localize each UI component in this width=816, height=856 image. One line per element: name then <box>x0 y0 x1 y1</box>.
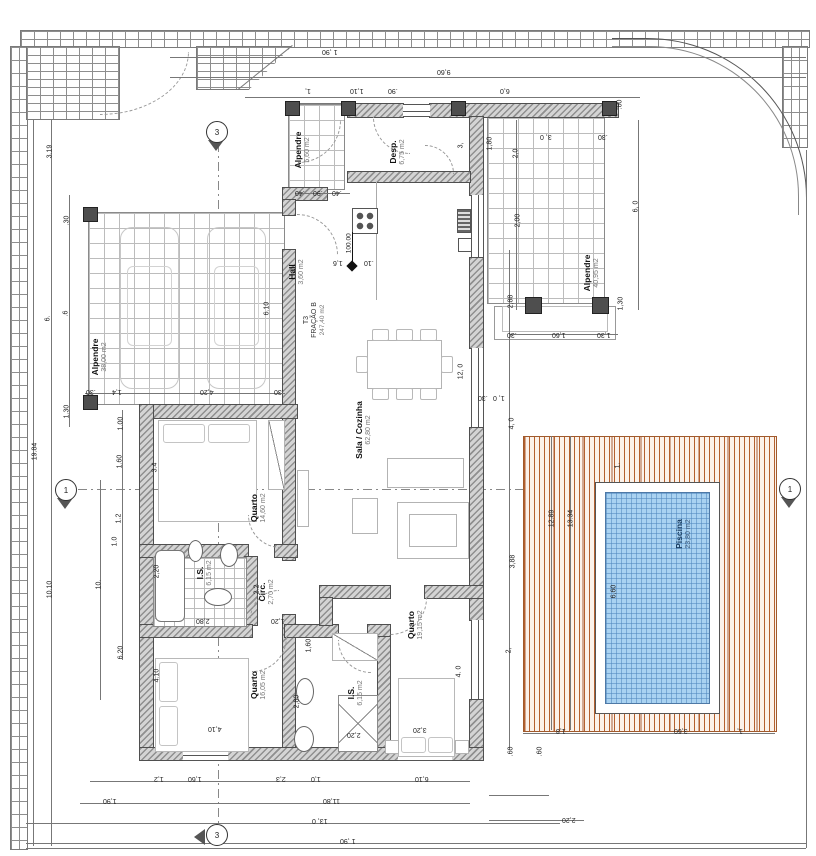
room-name: Hall <box>288 264 298 280</box>
gate-swing-arc <box>100 52 189 115</box>
room-area: 62,80 m2 <box>365 415 373 444</box>
dim-label: 1.0 <box>111 537 118 547</box>
dim-label: 6. <box>44 316 51 322</box>
room-name: I.S. <box>196 567 206 580</box>
dim-label: 3.19 <box>46 145 53 159</box>
kitchen-appliance <box>458 210 470 232</box>
room-area: 6,75 m2 <box>399 139 407 164</box>
dim-line <box>33 120 34 846</box>
dining-chair <box>396 329 413 341</box>
section-number: 3 <box>215 128 219 137</box>
nightstand <box>385 740 399 754</box>
section-number: 3 <box>215 831 219 840</box>
dim-label: 2,20 <box>153 565 160 579</box>
dim-label: 19.84 <box>31 443 38 461</box>
dim-label: 6,60 <box>610 585 617 599</box>
pillow <box>401 737 426 753</box>
room-label-bath2: I.S. 6,15 m2 <box>344 658 368 728</box>
stove-icon <box>352 208 378 234</box>
room-label-porch-small: Alpendre 5,60 m2 <box>291 115 315 185</box>
wall-bedroom3-top <box>425 586 483 598</box>
dim-label: 2,3 <box>276 775 286 782</box>
dim-label: 2,80 <box>293 695 300 709</box>
room-area: 38,00 m2 <box>101 342 109 371</box>
dim-line <box>509 250 510 750</box>
dim-label: 3,88 <box>509 555 516 569</box>
dim-line <box>245 97 640 98</box>
property-line-bottom <box>26 848 806 849</box>
dim-label: 6,10 <box>415 775 429 782</box>
dim-label: 13.34 <box>567 510 574 528</box>
dim-line <box>638 120 639 310</box>
wall-bedroom2-top <box>285 625 338 637</box>
room-area: 40,95 m2 <box>593 258 601 287</box>
dining-chair <box>420 329 437 341</box>
car-cabin <box>214 266 259 346</box>
wall-post <box>603 102 616 115</box>
room-label-garage: Alpendre 38,00 m2 <box>88 322 112 392</box>
dim-label: 2,00 <box>514 214 521 228</box>
garage-post <box>84 208 97 221</box>
dim-label: .40 <box>332 189 342 196</box>
room-name: Alpendre <box>91 339 101 376</box>
room-label-bedroom1: Quarto 14,60 m2 <box>247 473 271 543</box>
unit-fraction: FRAÇÃO B <box>311 302 319 338</box>
dim-label: 12.89 <box>548 510 555 528</box>
dim-line <box>51 120 52 846</box>
dim-label: .60 <box>616 100 623 110</box>
armchair <box>352 498 378 534</box>
dim-label: 6.10 <box>263 302 270 316</box>
pillow <box>159 662 178 702</box>
room-label-bath1: I.S. 6,15 m2 <box>193 538 217 608</box>
kitchen-counter-line <box>376 182 377 300</box>
dim-label: 1,10 <box>350 87 364 94</box>
dim-label: 3,60 <box>674 727 688 734</box>
room-label-pantry: Desp. 6,75 m2 <box>386 117 410 187</box>
car-cabin <box>127 266 172 346</box>
room-label-bedroom2: Quarto 16,05 m2 <box>247 650 271 720</box>
dim-label: 1,8 <box>556 727 566 734</box>
dim-label: .30 <box>598 133 608 140</box>
section-marker-left: 1 <box>55 479 77 501</box>
section-number: 1 <box>788 485 792 494</box>
dim-label: 4. 0 <box>455 666 462 678</box>
dim-label: 1,30 <box>597 331 611 338</box>
dim-label: 1.2 <box>115 514 122 524</box>
street-corner-curve-inner <box>612 46 799 215</box>
pillow <box>208 424 250 443</box>
room-name: Quarto <box>250 671 260 699</box>
dim-label: 6.20 <box>117 646 124 660</box>
nightstand <box>455 740 469 754</box>
dim-label: 1, 0 <box>493 394 505 401</box>
dim-line <box>80 803 470 804</box>
dim-label: 1,4 <box>112 388 122 395</box>
room-area: 6,15 m2 <box>357 680 365 705</box>
room-area: 16,05 m2 <box>260 670 268 699</box>
dining-chair <box>441 356 453 373</box>
dim-label: 9,60 <box>437 68 451 75</box>
tv-unit <box>297 470 309 527</box>
dim-label: 1,2 <box>154 775 164 782</box>
room-area: 14,60 m2 <box>260 493 268 522</box>
porch-post <box>526 298 541 313</box>
dim-label: 1, <box>305 87 311 94</box>
dim-line <box>551 436 552 730</box>
dim-label: 6, 0 <box>632 201 639 213</box>
dim-label: 11,80 <box>323 797 340 804</box>
dim-label: 3, <box>457 143 464 149</box>
room-name: Sala / Cozinha <box>355 401 365 459</box>
coffee-table <box>409 514 457 547</box>
dim-label: 1,0 <box>311 775 321 782</box>
dim-label: 1,6 <box>333 259 343 266</box>
dim-label: .30 <box>507 331 517 338</box>
room-area: 3,60 m2 <box>298 259 306 284</box>
wall-closet <box>320 598 332 625</box>
dim-label: 3.4 <box>151 463 158 473</box>
car-outline <box>120 227 179 389</box>
dim-label: 1.30 <box>63 405 70 419</box>
dim-label: 1,90 <box>103 797 117 804</box>
boundary-wall-left <box>10 46 28 850</box>
sink-icon <box>220 543 238 567</box>
dim-label: 1.00 <box>117 417 124 431</box>
wall-post <box>342 102 355 115</box>
dim-label: 4, 0 <box>508 418 515 430</box>
wall-bedroom1-top <box>140 405 297 418</box>
dim-label: 6,0 <box>500 87 510 94</box>
dim-line <box>489 795 549 796</box>
dim-line <box>122 410 123 660</box>
sofa <box>387 458 464 488</box>
dim-label: 2,20 <box>562 816 576 823</box>
dim-label: .40 <box>295 189 305 196</box>
dim-line <box>26 823 560 824</box>
window-right-bedroom3 <box>471 620 484 700</box>
section-marker-bottom: 3 <box>206 824 228 846</box>
wall-top <box>348 104 403 117</box>
unit-total-area: 247,40 m2 <box>319 305 326 336</box>
dim-label: .10 <box>364 259 374 266</box>
dim-label: 1, <box>737 727 743 734</box>
dim-label: 10. <box>95 580 102 590</box>
dining-chair <box>420 388 437 400</box>
dim-label: 1,30 <box>617 297 624 311</box>
room-label-living: Sala / Cozinha 62,80 m2 <box>352 395 376 465</box>
room-name: I.S. <box>347 687 357 700</box>
dim-label: 2, <box>505 648 512 654</box>
garage-post <box>84 396 97 409</box>
dim-label: 10.10 <box>46 581 53 599</box>
section-marker-top: 3 <box>206 121 228 143</box>
dining-table <box>367 340 442 389</box>
dim-line <box>170 57 806 58</box>
wall-bath2-right <box>378 637 390 748</box>
dim-label: 1. <box>614 463 621 469</box>
pillow <box>428 737 453 753</box>
dim-label: 1.60 <box>116 455 123 469</box>
dim-label: 3,20 <box>413 726 427 733</box>
room-area: 5,60 m2 <box>304 137 312 162</box>
dim-label: .30 <box>274 388 284 395</box>
window-right-living <box>471 348 484 428</box>
pillow <box>163 424 205 443</box>
window-top <box>403 104 430 117</box>
dim-label: 1 ,90 <box>340 837 356 844</box>
unit-label: T3 FRAÇÃO B 247,40 m2 <box>295 285 335 355</box>
dim-label: 12, 0 <box>457 364 464 380</box>
wall-post <box>452 102 465 115</box>
room-name: Circ. <box>258 583 268 602</box>
dim-label: 1,60 <box>305 639 312 653</box>
door-arc <box>425 145 454 174</box>
section-number: 1 <box>64 486 68 495</box>
dim-label: 2,20 <box>347 731 361 738</box>
dim-line <box>570 436 571 730</box>
dim-label: 2,0 <box>512 149 519 159</box>
dim-label: .90 <box>313 189 323 196</box>
dim-label: .90 <box>388 87 398 94</box>
wall-right <box>470 117 483 195</box>
dim-label: 3, 0 <box>540 133 552 140</box>
dim-line <box>100 480 101 700</box>
dim-label: 13, 0 <box>312 817 328 824</box>
level-marker-value: 100.00 <box>347 233 354 253</box>
dim-label: 1 ,90 <box>322 48 338 55</box>
wall-left <box>140 405 153 760</box>
room-area: 23,80 m2 <box>685 519 693 548</box>
bathtub <box>155 550 185 622</box>
dining-chair <box>372 329 389 341</box>
pillow <box>159 706 178 746</box>
dim-label: 1,60 <box>188 775 202 782</box>
dining-chair <box>396 388 413 400</box>
section-marker-right: 1 <box>779 478 801 500</box>
room-name: Alpendre <box>583 255 593 292</box>
dim-label: 2,88 <box>507 295 514 309</box>
car-outline <box>207 227 266 389</box>
room-name: Piscina <box>675 519 685 549</box>
dim-label: 4,10 <box>208 725 222 732</box>
dim-label: .60 <box>536 747 543 757</box>
dim-label: 4.10 <box>153 669 160 683</box>
property-line-right <box>806 150 807 848</box>
dim-label: .60 <box>507 747 514 757</box>
level-marker-icon <box>346 260 357 271</box>
room-label-porch-right: Alpendre 40,95 m2 <box>580 238 604 308</box>
dining-chair <box>356 356 368 373</box>
dim-label: 1,60 <box>552 331 566 338</box>
window-right-kitchen <box>471 195 484 258</box>
room-area: 2,70 m2 <box>268 579 276 604</box>
dim-label: .6 <box>62 311 69 317</box>
dim-label: .30 <box>63 216 70 226</box>
wall-spine <box>283 200 295 215</box>
room-area: 19,15 m2 <box>417 610 425 639</box>
room-label-bedroom3: Quarto 19,15 m2 <box>404 590 428 660</box>
room-area: 6,15 m2 <box>206 560 214 585</box>
dim-label: 4,20 <box>200 388 214 395</box>
room-name: Quarto <box>250 494 260 522</box>
dim-line <box>170 77 806 78</box>
room-name: Quarto <box>407 611 417 639</box>
dim-label: 1,80 <box>486 137 493 151</box>
kitchen-appliance <box>458 238 472 252</box>
dim-line <box>26 843 806 844</box>
room-label-pool: Piscina 23,80 m2 <box>672 499 696 569</box>
room-name: Alpendre <box>294 132 304 169</box>
wall-bedroom3-top <box>320 586 390 598</box>
floor-plan: 100.00 3 3 1 1 1 ,90 9,60 1, 1,10 .90 6,… <box>0 0 816 856</box>
wall-right <box>470 258 483 348</box>
section-marker-triangle <box>194 829 205 845</box>
toilet-icon <box>294 726 314 752</box>
dim-label: 2,80 <box>196 617 210 624</box>
wall-post <box>286 102 299 115</box>
dim-label: .30 <box>478 394 488 401</box>
room-name: Desp. <box>389 140 399 163</box>
room-label-circ: Circ. 2,70 m2 <box>255 557 279 627</box>
